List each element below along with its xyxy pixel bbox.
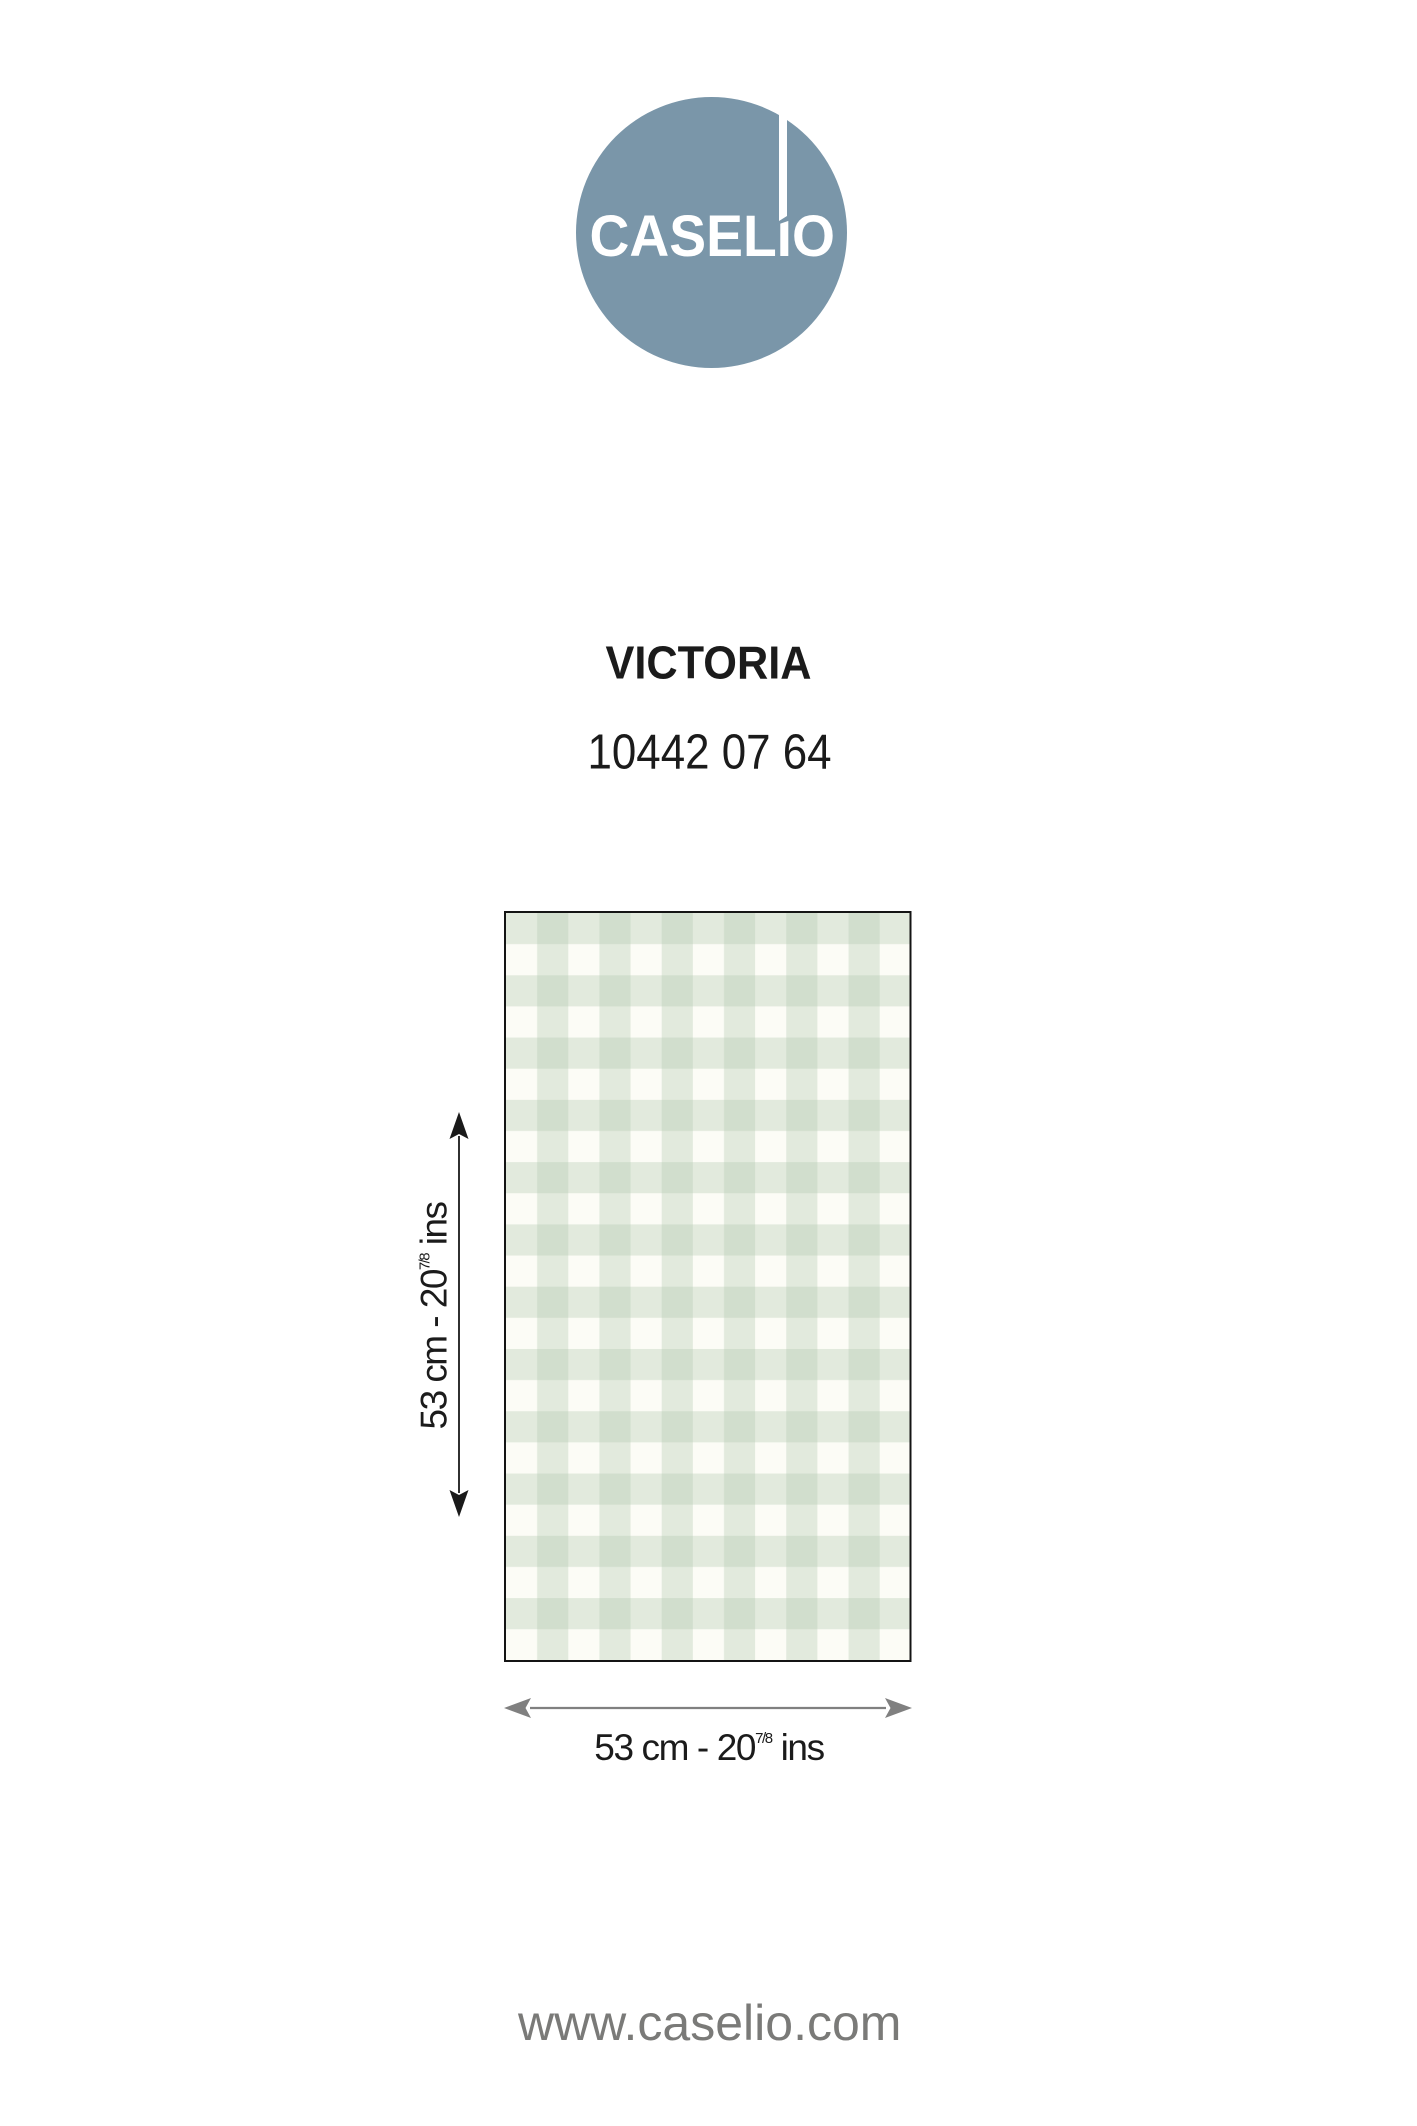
svg-text:www.caselio.com: www.caselio.com <box>517 1995 901 2051</box>
svg-text:CASELIO: CASELIO <box>590 204 836 269</box>
svg-text:53 cm - 207/8 ins: 53 cm - 207/8 ins <box>414 1202 455 1430</box>
svg-text:53 cm - 207/8 ins: 53 cm - 207/8 ins <box>594 1727 824 1768</box>
svg-text:10442 07 64: 10442 07 64 <box>588 726 832 780</box>
svg-text:VICTORIA: VICTORIA <box>606 637 812 689</box>
